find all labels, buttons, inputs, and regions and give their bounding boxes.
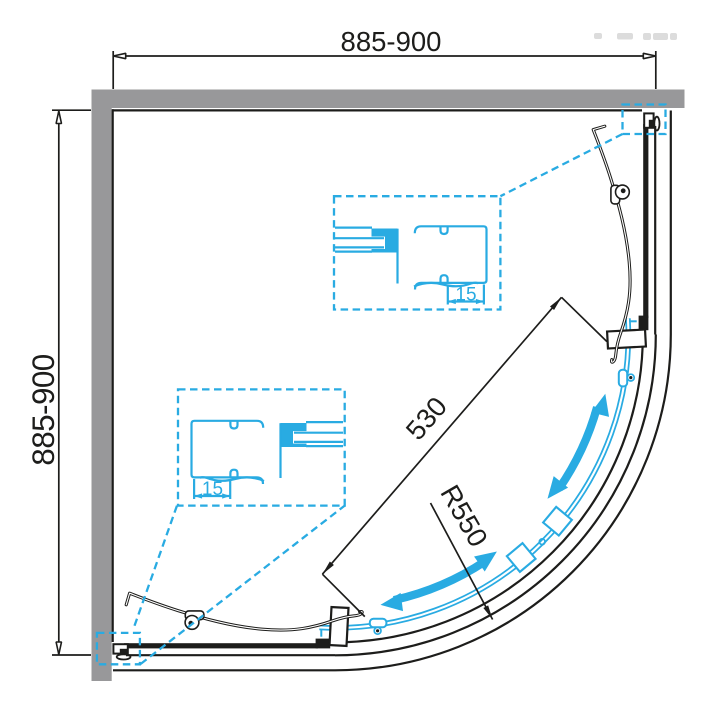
svg-text:15: 15	[455, 285, 476, 306]
svg-text:885-900: 885-900	[341, 26, 442, 57]
svg-text:15: 15	[202, 479, 223, 500]
svg-text:530: 530	[400, 391, 453, 446]
svg-text:R550: R550	[434, 480, 494, 552]
svg-text:885-900: 885-900	[25, 354, 61, 465]
